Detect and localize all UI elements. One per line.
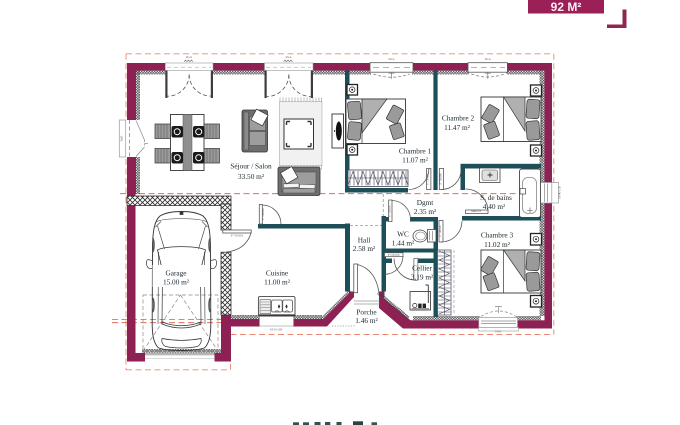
svg-text:Garage: Garage [165,269,186,278]
svg-text:Cuisine: Cuisine [266,269,288,278]
svg-text:Chambre 2: Chambre 2 [442,114,475,123]
svg-text:RsB: RsB [120,135,124,142]
svg-text:RsA: RsA [485,57,492,61]
svg-text:P 5X008: P 5X008 [388,253,400,257]
svg-text:WC: WC [397,230,409,239]
svg-text:Cellier: Cellier [412,264,432,273]
svg-text:33.50 m²: 33.50 m² [238,172,265,181]
svg-text:RsA: RsA [285,55,292,59]
svg-text:SP10 OB: SP10 OB [558,185,562,198]
svg-text:P 7X03A: P 7X03A [438,225,442,237]
svg-text:15.00 m²: 15.00 m² [163,277,190,286]
svg-text:Dgmt: Dgmt [417,198,434,207]
svg-text:11.07 m²: 11.07 m² [402,155,429,164]
svg-text:4.40 m²: 4.40 m² [483,202,506,211]
svg-text:Chambre 1: Chambre 1 [399,147,432,156]
svg-text:F 7X09A: F 7X09A [261,208,265,220]
svg-text:Chambre 3: Chambre 3 [481,231,514,240]
svg-text:F 7X09B: F 7X09B [439,173,443,184]
svg-text:11.47 m²: 11.47 m² [444,123,471,132]
svg-text:11.02 m²: 11.02 m² [484,240,511,249]
svg-text:3.19 m²: 3.19 m² [411,272,434,281]
svg-text:P 7X08A: P 7X08A [231,234,244,238]
svg-text:SP10 OB: SP10 OB [270,328,283,332]
svg-text:RsA: RsA [388,57,395,61]
svg-text:S. de bains: S. de bains [480,193,512,202]
svg-text:RsA: RsA [186,55,193,59]
svg-text:11.00 m²: 11.00 m² [264,277,291,286]
svg-text:2.58 m²: 2.58 m² [353,244,376,253]
svg-text:F 7X09A: F 7X09A [387,205,391,217]
svg-text:1.46 m²: 1.46 m² [355,316,378,325]
svg-text:Séjour / Salon: Séjour / Salon [230,162,272,171]
svg-text:F 7X09A: F 7X09A [426,173,430,185]
svg-text:VR6: VR6 [495,330,502,334]
svg-text:1.44 m²: 1.44 m² [392,238,415,247]
svg-text:92 M²: 92 M² [551,0,582,14]
svg-text:M0DJ d: M0DJ d [471,209,481,213]
svg-text:2.35 m²: 2.35 m² [414,207,437,216]
